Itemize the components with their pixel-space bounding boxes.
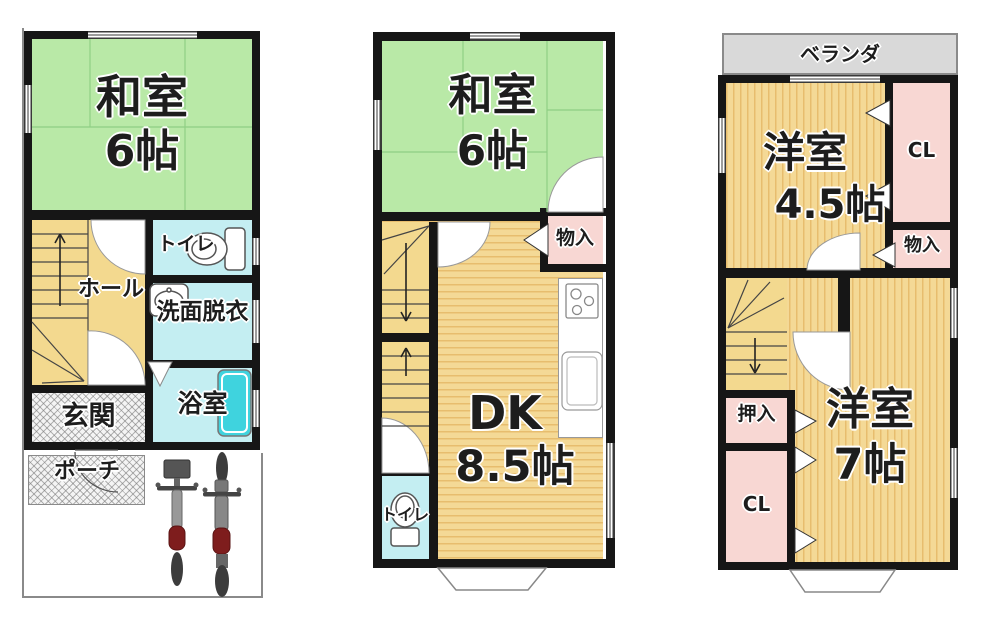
up-arrow-icon [55,234,65,306]
bicycle-icon [156,460,199,586]
closet-upper-3f-label: CL [893,140,950,160]
floor1-plan: 和室 6帖 トイレ ホール 洗面脱衣 浴室 玄関 ポーチ [22,28,280,608]
room-washitsu-1f-size: 6帖 [32,130,252,174]
tatami-lines-icon [32,39,252,210]
up-arrow-icon [401,348,411,376]
room-yoshitsu-large-3f-label: 洋室 [795,388,945,432]
room-washitsu-2f-label: 和室 [382,74,603,118]
storage-2f-label: 物入 [540,229,610,248]
floor-plan-canvas: 和室 6帖 トイレ ホール 洗面脱衣 浴室 玄関 ポーチ [0,0,1000,632]
room-dk-2f-label: DK [430,390,580,436]
down-arrow-icon [750,338,760,373]
entrance-1f-label: 玄関 [32,403,145,430]
bathroom-1f-label: 浴室 [153,391,252,416]
storage-3f-label: 物入 [894,237,950,255]
stairs-icon [726,280,787,374]
motorbike-icon [203,452,242,597]
bay-window-icon [790,570,895,592]
floor3-symbols-layer [718,28,963,608]
toilet-1f-label: トイレ [150,235,222,254]
oshiire-3f-label: 押入 [722,405,791,424]
bay-window-icon [438,568,546,590]
veranda-3f-label: ベランダ [722,44,958,64]
closet-lower-3f-label: CL [726,494,787,514]
porch-1f-label: ポーチ [32,461,142,483]
room-yoshitsu-small-3f-size: 4.5帖 [730,185,930,225]
washroom-1f-label: 洗面脱衣 [153,301,252,324]
room-dk-2f-size: 8.5帖 [425,446,605,489]
floor2-plan: 和室 6帖 物入 DK 8.5帖 トイレ [370,28,620,608]
room-yoshitsu-small-3f-label: 洋室 [730,132,880,174]
stove-icon [566,284,598,318]
bath-door-icon [148,362,172,386]
room-washitsu-1f-label: 和室 [32,74,252,120]
door-arc-icon [793,233,860,390]
floor3-plan: ベランダ 洋室 4.5帖 CL 物入 押入 CL 洋室 7帖 [718,28,963,608]
toilet-2f-label: トイレ [370,507,440,523]
door-arc-icon [88,220,145,385]
room-washitsu-2f-size: 6帖 [382,130,603,172]
room-yoshitsu-large-3f-size: 7帖 [795,444,945,487]
hall-1f-label: ホール [66,279,156,301]
